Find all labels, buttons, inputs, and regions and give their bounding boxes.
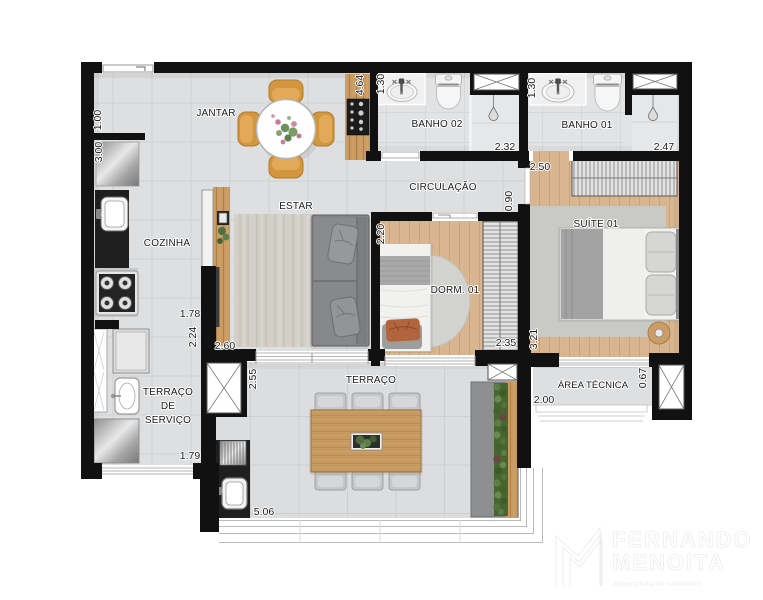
svg-text:TERRAÇO: TERRAÇO — [143, 387, 193, 398]
svg-text:2.20: 2.20 — [375, 224, 387, 245]
svg-text:DE: DE — [161, 401, 175, 412]
svg-text:TERRAÇO: TERRAÇO — [346, 375, 396, 386]
svg-text:MENOITA: MENOITA — [612, 550, 726, 575]
svg-text:2.50: 2.50 — [530, 161, 551, 173]
svg-text:1.78: 1.78 — [180, 308, 201, 320]
svg-text:DORM. 01: DORM. 01 — [431, 285, 480, 296]
svg-text:ÁREA TÉCNICA: ÁREA TÉCNICA — [558, 380, 629, 391]
svg-text:COZINHA: COZINHA — [144, 238, 191, 249]
svg-text:5.06: 5.06 — [254, 506, 275, 518]
svg-text:BANHO 01: BANHO 01 — [561, 120, 612, 131]
svg-text:1.30: 1.30 — [526, 78, 538, 99]
svg-text:2.47: 2.47 — [654, 141, 675, 153]
svg-text:2.60: 2.60 — [215, 340, 236, 352]
svg-text:BANHO 02: BANHO 02 — [411, 119, 462, 130]
svg-text:2.32: 2.32 — [495, 141, 516, 153]
svg-text:2.35: 2.35 — [496, 337, 517, 349]
svg-text:SERVIÇO: SERVIÇO — [145, 415, 191, 426]
svg-text:0.67: 0.67 — [637, 368, 649, 389]
svg-text:ESTAR: ESTAR — [279, 201, 313, 212]
svg-text:1.00: 1.00 — [92, 110, 104, 131]
svg-text:CIRCULAÇÃO: CIRCULAÇÃO — [409, 180, 477, 193]
svg-text:3.00: 3.00 — [93, 142, 105, 163]
svg-text:JANTAR: JANTAR — [196, 108, 235, 119]
svg-text:1.30: 1.30 — [375, 74, 387, 95]
svg-text:2.00: 2.00 — [534, 394, 555, 406]
svg-text:2.55: 2.55 — [247, 369, 259, 390]
svg-text:ARQUITETURA DE INTERIORES: ARQUITETURA DE INTERIORES — [613, 582, 702, 588]
svg-text:4.64: 4.64 — [354, 75, 366, 96]
svg-text:0.90: 0.90 — [503, 191, 515, 212]
svg-text:SUÍTE 01: SUÍTE 01 — [574, 217, 619, 230]
svg-text:3.21: 3.21 — [528, 329, 540, 350]
svg-text:1.79: 1.79 — [180, 450, 201, 462]
svg-text:FERNANDO: FERNANDO — [612, 527, 753, 552]
svg-text:2.24: 2.24 — [187, 327, 199, 348]
